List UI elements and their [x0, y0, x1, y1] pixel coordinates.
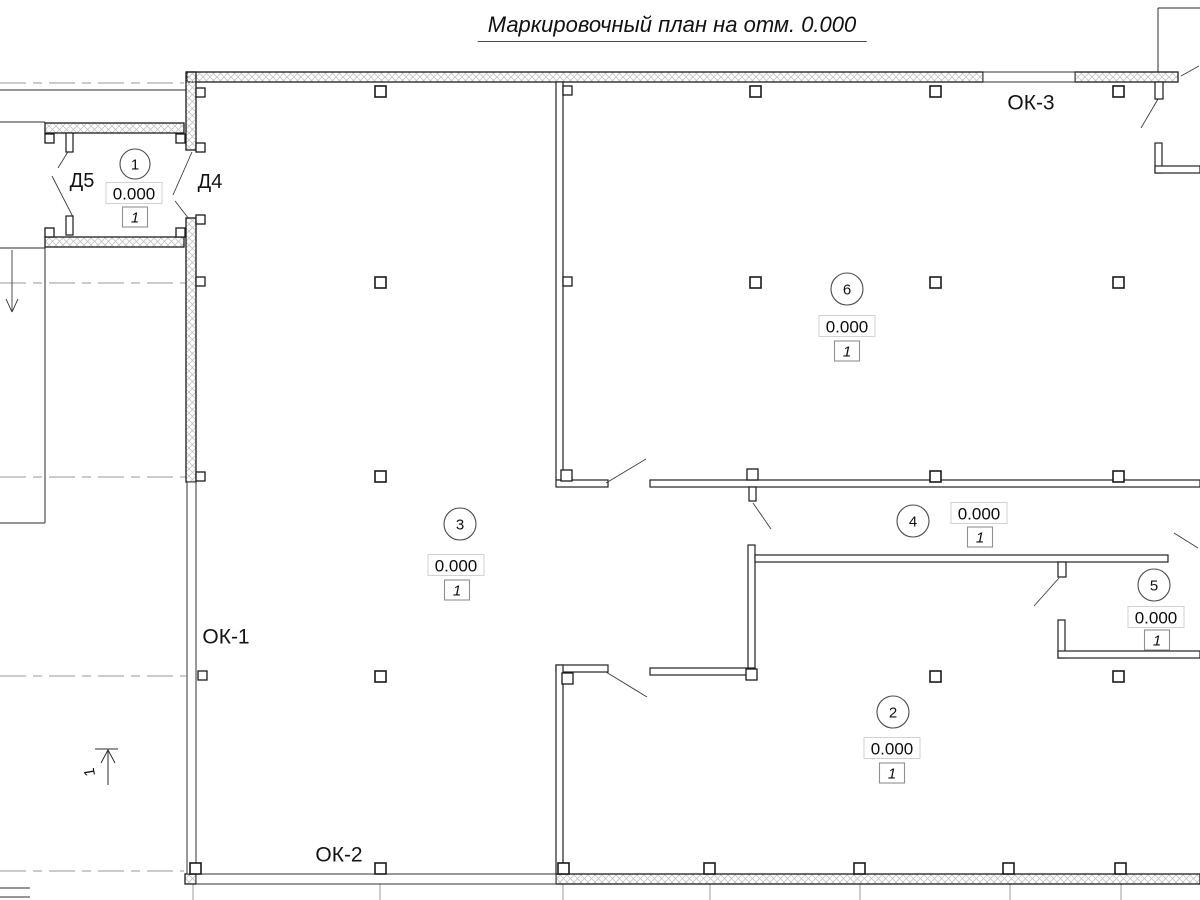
hatched-wall	[187, 72, 983, 82]
hatched-wall	[186, 218, 196, 482]
wall-tab	[176, 228, 185, 237]
window-label-ok3: ОК-3	[1007, 92, 1054, 115]
elevation-value: 0.000	[1135, 609, 1178, 628]
wall-tab	[196, 143, 205, 152]
door-label-d4: Д4	[198, 171, 223, 193]
wall-tab	[196, 277, 205, 286]
column-square	[1113, 671, 1124, 682]
column-square	[750, 86, 761, 97]
room-number-text: 4	[909, 514, 917, 531]
leader-line	[1034, 578, 1059, 606]
elevation-value: 0.000	[958, 505, 1001, 524]
wall-tab	[196, 215, 205, 224]
column-square	[375, 471, 386, 482]
window-opening	[983, 72, 1075, 82]
leader-line	[1174, 533, 1198, 548]
window-label-ok1: ОК-1	[202, 626, 249, 649]
leader-line	[173, 152, 192, 195]
floor-type-value: 1	[131, 210, 139, 227]
door-jamb	[1155, 82, 1163, 99]
wall-tab	[196, 88, 205, 97]
door-jamb	[1058, 562, 1066, 577]
wall-tab	[176, 134, 185, 143]
floor-type-value: 1	[843, 344, 851, 361]
column-square	[190, 863, 201, 874]
column-square	[930, 86, 941, 97]
leader-line	[753, 503, 771, 529]
drawing-title: Маркировочный план на отм. 0.000	[478, 12, 867, 42]
column-square	[930, 277, 941, 288]
room-number-text: 2	[889, 705, 897, 722]
down-arrow-head	[6, 299, 12, 312]
room-number-text: 3	[456, 517, 464, 534]
column-square	[1113, 277, 1124, 288]
door-jamb	[749, 487, 756, 501]
floor-plan-drawing: 110.000160.000130.000140.000150.000120.0…	[0, 0, 1200, 900]
column-square	[1003, 863, 1014, 874]
partition-wall	[1155, 166, 1200, 173]
column-square	[1115, 863, 1126, 874]
elevation-value: 0.000	[871, 740, 914, 759]
corner-tab	[561, 470, 572, 481]
column-square	[704, 863, 715, 874]
floor-type-value: 1	[1153, 633, 1161, 650]
column-square	[375, 86, 386, 97]
elevation-value: 0.000	[826, 318, 869, 337]
corner-tab	[562, 673, 573, 684]
wall-tab	[198, 671, 207, 680]
elevation-value: 0.000	[113, 185, 156, 204]
elevation-value: 0.000	[435, 557, 478, 576]
column-square	[558, 863, 569, 874]
partition-wall	[556, 665, 563, 874]
section-arrow-head	[108, 750, 115, 763]
leader-line	[1141, 99, 1158, 128]
leader-line	[175, 201, 189, 219]
room-number-text: 5	[1150, 578, 1158, 595]
partition-wall	[556, 665, 608, 672]
wall-tab	[45, 228, 54, 237]
hatched-wall	[186, 72, 196, 150]
partition-wall	[650, 668, 755, 675]
leader-line	[606, 459, 646, 483]
wall-tab	[563, 277, 572, 286]
door-jamb	[66, 216, 73, 235]
wall-tab	[563, 86, 572, 95]
partition-wall	[748, 545, 755, 675]
column-square	[930, 671, 941, 682]
column-square	[750, 277, 761, 288]
window-opening	[196, 874, 556, 884]
section-mark-label: 1	[81, 766, 99, 777]
partition-wall	[755, 555, 1168, 562]
floor-plan-canvas: 110.000160.000130.000140.000150.000120.0…	[0, 0, 1200, 900]
column-square	[1113, 471, 1124, 482]
column-square	[1113, 86, 1124, 97]
door-jamb	[66, 133, 73, 152]
door-label-d5: Д5	[70, 170, 95, 192]
hatched-wall	[185, 874, 196, 884]
corner-tab	[746, 669, 757, 680]
section-arrow-head	[101, 750, 108, 763]
floor-type-value: 1	[976, 530, 984, 547]
column-square	[375, 863, 386, 874]
hatched-wall	[556, 874, 1200, 884]
wall-tab	[196, 472, 205, 481]
partition-wall	[1058, 651, 1200, 658]
room-number-text: 6	[843, 282, 851, 299]
floor-type-value: 1	[453, 583, 461, 600]
column-square	[375, 671, 386, 682]
window-label-ok2: ОК-2	[315, 844, 362, 867]
down-arrow-head	[12, 299, 18, 312]
corner-tab	[747, 469, 758, 480]
hatched-wall	[45, 237, 184, 247]
column-square	[854, 863, 865, 874]
hatched-wall	[45, 123, 184, 133]
hatched-wall	[1075, 72, 1178, 82]
leader-line	[1181, 66, 1199, 76]
column-square	[375, 277, 386, 288]
wall-tab	[45, 134, 54, 143]
floor-type-value: 1	[888, 766, 896, 783]
column-square	[930, 471, 941, 482]
partition-wall	[556, 82, 563, 480]
window-opening	[187, 482, 196, 874]
room-number-text: 1	[131, 157, 139, 174]
leader-line	[58, 150, 69, 168]
leader-line	[606, 672, 647, 697]
